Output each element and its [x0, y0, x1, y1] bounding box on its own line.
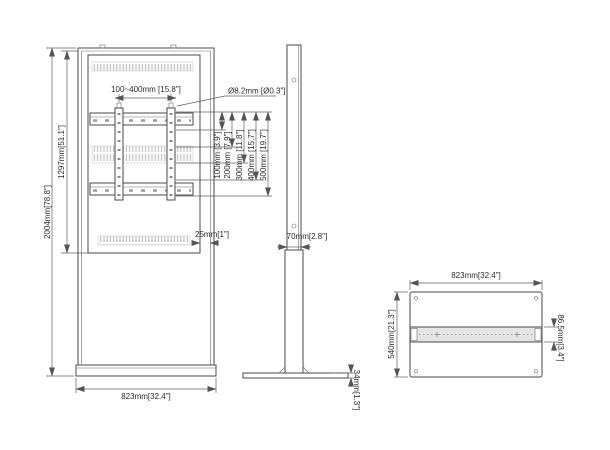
dim-total-height: 2004mm[78.8"]	[43, 48, 76, 376]
mount-rail-right	[167, 103, 175, 200]
base-corner-hole	[415, 297, 418, 300]
dim-screen-height-label: 1297mm[51.1"]	[57, 125, 66, 179]
dim-side-depth: 70mm[2.8"]	[277, 232, 327, 247]
dim-base-width-label: 823mm[32.4"]	[451, 271, 501, 280]
side-column	[287, 45, 301, 250]
dim-screen-height: 1297mm[51.1"]	[57, 51, 88, 253]
mount-crossbar-top	[90, 113, 193, 125]
drawing-canvas: 2004mm[78.8"] 1297mm[51.1"] 100~400mm [1…	[0, 0, 610, 450]
dim-vesa-height-400-label: 400mm [15.7"]	[247, 129, 256, 181]
dim-foot-height: 34mm[1.3"]	[330, 364, 361, 410]
dim-base-channel-height-label: 86.5mm[3.4"]	[556, 314, 565, 361]
base-corner-hole	[535, 370, 538, 373]
mount-rail-left	[115, 103, 123, 200]
dim-foot-height-label: 34mm[1.3"]	[352, 370, 361, 411]
mount-crossbar-bottom	[90, 183, 193, 195]
dim-vesa-height-100-label: 100mm [3.9"]	[213, 131, 222, 178]
side-hole-bottom	[292, 224, 296, 228]
technical-drawing: 2004mm[78.8"] 1297mm[51.1"] 100~400mm [1…	[0, 0, 610, 450]
side-foot-plate	[243, 367, 348, 378]
dim-vesa-width: 100~400mm [15.8"]	[111, 85, 181, 102]
cabinet-outline	[78, 48, 214, 365]
dim-vesa-height-300-label: 300mm [11.8"]	[235, 129, 244, 180]
base-channel-bar	[410, 327, 542, 342]
dim-total-height-label: 2004mm[78.8"]	[43, 185, 52, 239]
vent-grille-bottom	[98, 236, 190, 245]
dim-vesa-width-label: 100~400mm [15.8"]	[111, 85, 181, 94]
dim-base-width: 823mm[32.4"]	[410, 271, 542, 290]
vent-grille-middle	[92, 146, 193, 163]
dim-hole-diameter: Ø8.2mm [Ø0.3"]	[177, 87, 286, 107]
dim-front-base-width: 823mm[32.4"]	[76, 378, 216, 401]
vent-grille-top	[92, 62, 193, 71]
side-plinth	[285, 250, 303, 373]
dim-bezel-offset-label: 25mm[1"]	[195, 230, 229, 239]
dim-vesa-height-200-label: 200mm [7.9"]	[223, 131, 232, 178]
dim-base-depth-label: 540mm[21.3"]	[387, 309, 396, 359]
base-corner-hole	[415, 370, 418, 373]
dim-vesa-height-500-label: 500mm [19.7"]	[259, 129, 268, 181]
dim-base-depth: 540mm[21.3"]	[387, 292, 408, 377]
base-plate-front	[76, 365, 216, 376]
dim-base-channel-height: 86.5mm[3.4"]	[544, 314, 565, 361]
dim-hole-diameter-label: Ø8.2mm [Ø0.3"]	[228, 87, 286, 96]
dim-front-base-width-label: 823mm[32.4"]	[121, 392, 171, 401]
front-view: 2004mm[78.8"] 1297mm[51.1"] 100~400mm [1…	[43, 45, 286, 401]
base-top-view: 823mm[32.4"] 540mm[21.3"] 86.5mm[3.4"]	[387, 271, 565, 377]
side-hole-top	[292, 78, 296, 82]
dim-side-depth-label: 70mm[2.8"]	[287, 232, 328, 241]
dim-bezel-offset: 25mm[1"]	[193, 230, 229, 243]
side-view: 70mm[2.8"] 34mm[1.3"]	[243, 45, 361, 410]
base-corner-hole	[535, 297, 538, 300]
